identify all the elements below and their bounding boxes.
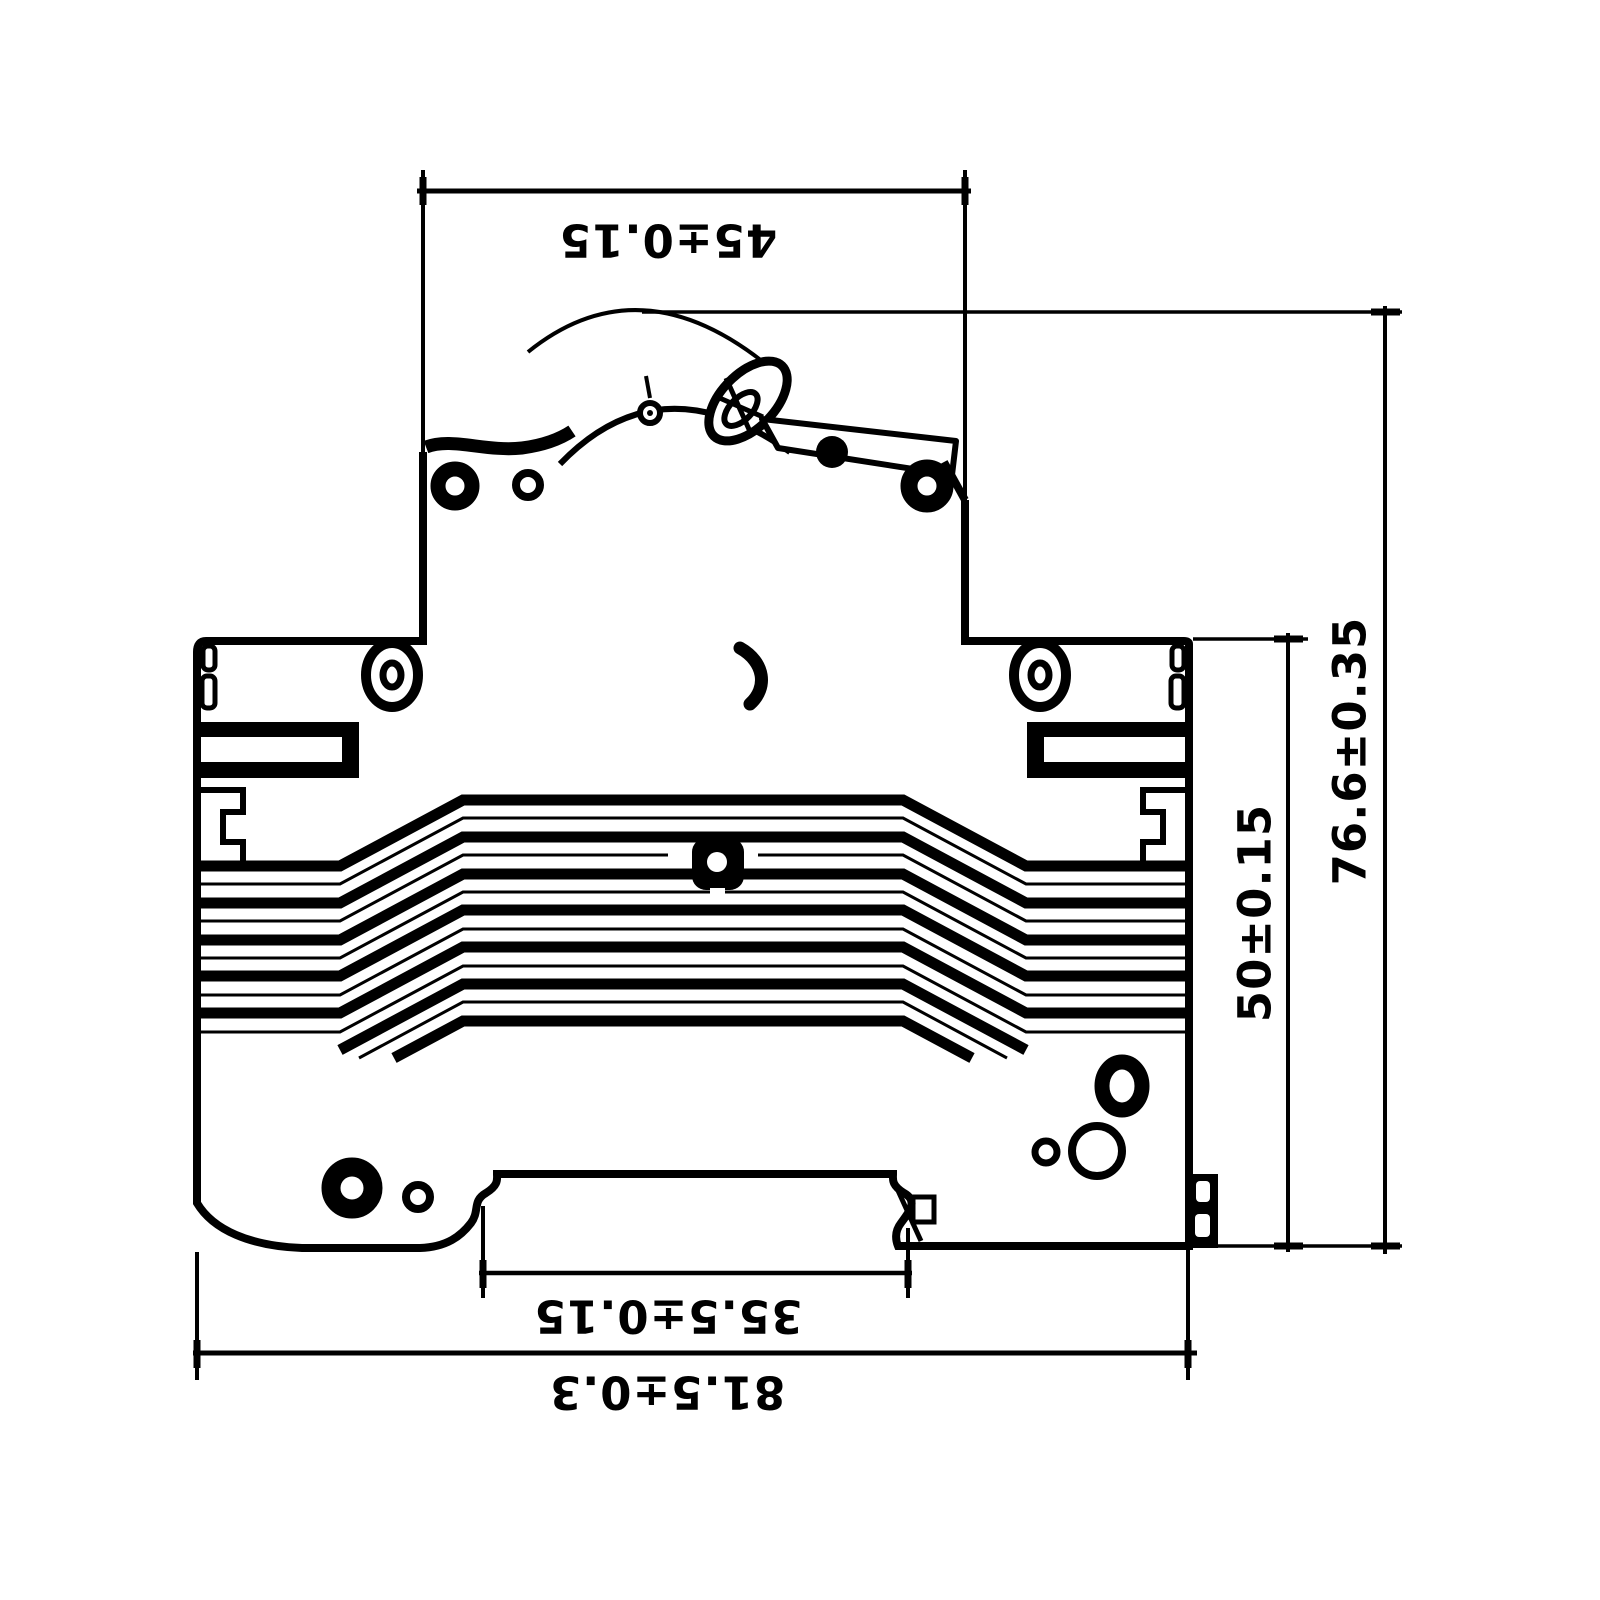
- right-slot-band-opening: [1044, 737, 1194, 762]
- din-slot-latch: [913, 1197, 934, 1222]
- left-screw-boss: [366, 643, 418, 707]
- right-edge-clip-step: [1189, 1174, 1218, 1248]
- technical-drawing-canvas: 45±0.15 76.6±0.35 50±0.15 35.5±0.15 81.5…: [0, 0, 1600, 1600]
- left-slot-band-opening: [192, 737, 342, 762]
- left-edge-slot-lower: [202, 676, 215, 708]
- dimension-label-top-width: 45±0.15: [559, 214, 777, 267]
- left-washer: [438, 469, 472, 503]
- right-edge-slot-lower: [1171, 676, 1184, 708]
- right-edge-slot-upper: [1172, 646, 1184, 670]
- left-small-rivet: [516, 473, 540, 497]
- dimension-label-overall-width: 81.5±0.3: [549, 1366, 785, 1419]
- right-screw-boss: [1014, 643, 1066, 707]
- bottom-left-small-hole: [406, 1185, 430, 1209]
- dome-pivot-dot: [647, 410, 653, 416]
- link-pivot-blob: [816, 436, 848, 468]
- dimension-label-din-slot-width: 35.5±0.15: [534, 1290, 803, 1343]
- bottom-left-rivet: [331, 1167, 373, 1209]
- left-edge-slot-upper: [203, 646, 215, 670]
- bottom-right-rivet: [1102, 1062, 1142, 1110]
- dimension-label-overall-height: 76.6±0.35: [1324, 617, 1377, 886]
- dimension-label-body-height: 50±0.15: [1229, 804, 1282, 1022]
- bottom-right-small-hole: [1035, 1141, 1057, 1163]
- right-washer: [909, 468, 945, 504]
- breaker-profile-drawing: 45±0.15 76.6±0.35 50±0.15 35.5±0.15 81.5…: [0, 0, 1600, 1600]
- bottom-right-medium-hole: [1072, 1126, 1122, 1176]
